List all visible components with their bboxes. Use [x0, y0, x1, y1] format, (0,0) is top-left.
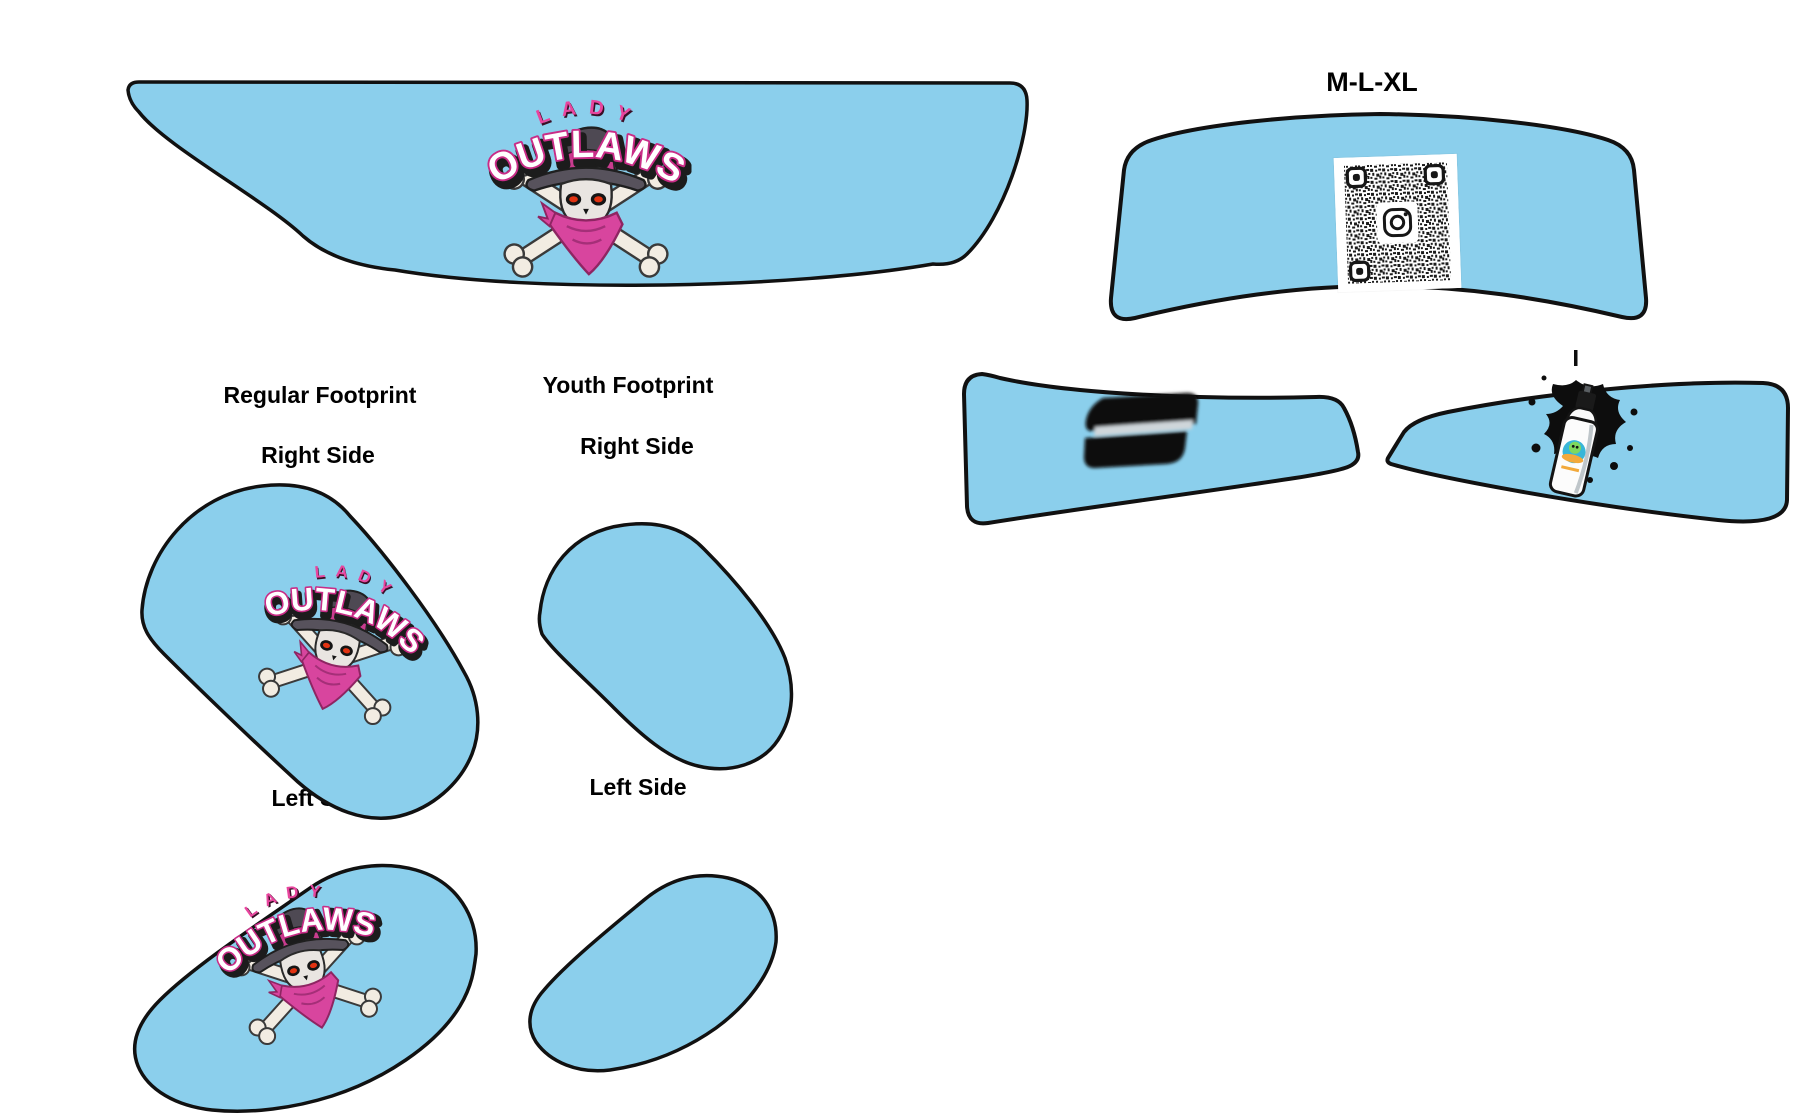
qr-finder-top-right — [1425, 165, 1444, 184]
side-band-right — [1368, 350, 1800, 550]
youth-left-side-shape — [530, 876, 776, 1071]
label-youth-right-side: Right Side — [537, 434, 737, 459]
instagram-icon — [1376, 201, 1418, 243]
qr-finder-bottom-left — [1350, 262, 1369, 281]
qr-code — [1334, 154, 1462, 292]
label-regular-right-side: Right Side — [220, 443, 416, 468]
qr-code-graphic — [1334, 154, 1462, 292]
youth-right-side-panel — [528, 516, 800, 784]
lady-outlaws-logo — [480, 88, 692, 278]
youth-left-side-panel — [524, 868, 788, 1082]
label-size-group: M-L-XL — [1282, 68, 1462, 98]
label-regular-footprint: Regular Footprint — [205, 383, 435, 408]
qr-finder-top-left — [1347, 168, 1366, 187]
side-band-left — [950, 368, 1370, 538]
youth-right-side-shape — [539, 524, 791, 769]
label-youth-footprint: Youth Footprint — [518, 373, 738, 398]
